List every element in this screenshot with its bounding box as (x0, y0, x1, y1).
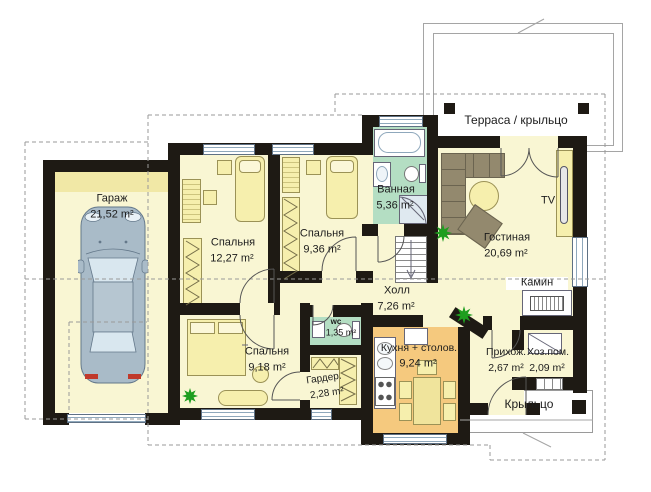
room-label-garage: Гараж (96, 194, 127, 205)
wall (361, 303, 373, 420)
room-label-bathroom: Ванная (377, 185, 415, 196)
dining-chair (399, 403, 412, 421)
porch-column (572, 400, 586, 414)
wardrobe-cabinet-1 (183, 238, 202, 308)
room-area-utility: 2,09 m² (529, 363, 565, 374)
room-area-hall: 7,26 m² (377, 302, 414, 313)
room-label-entry: Прихож. (486, 347, 526, 358)
room-label-bedroom2: Спальня (300, 229, 344, 240)
floor-garage-band (55, 172, 168, 192)
wall (43, 160, 168, 172)
room-area-bedroom3: 9,18 m² (248, 363, 285, 374)
bathtub-inner (378, 132, 421, 153)
terrace-label: Терраса / крыльцо (464, 114, 567, 126)
bed-pillow (330, 160, 354, 173)
wall (168, 408, 365, 420)
toilet-tank (419, 164, 426, 183)
wall (168, 143, 180, 425)
utility-exit-steps (536, 378, 563, 390)
garage-door (67, 414, 146, 423)
wc-sink (312, 321, 325, 338)
wall (43, 413, 69, 425)
tv-label: TV (541, 196, 555, 207)
terrace-column (578, 103, 589, 114)
wall (310, 345, 363, 355)
room-area-garage: 21,52 m² (90, 210, 133, 221)
stove (375, 377, 395, 406)
fireplace-label: Камин (521, 278, 553, 289)
room-label-utility: Хоз.пом. (527, 347, 569, 358)
room-label-bedroom1: Спальня (211, 238, 255, 249)
wardrobe-cabinet-2 (282, 197, 300, 281)
room-area-bathroom: 5,36 m² (376, 201, 413, 212)
window (379, 116, 423, 127)
room-label-hall: Холл (384, 286, 410, 297)
window (383, 434, 447, 444)
desk (182, 179, 201, 223)
wall (268, 271, 373, 283)
room-area-bedroom2: 9,36 m² (303, 245, 340, 256)
door-opening-bedroom1 (240, 303, 274, 315)
staircase (395, 236, 427, 283)
nightstand (217, 160, 232, 175)
window (272, 144, 314, 155)
door-opening-wc (313, 305, 333, 317)
wall (436, 136, 500, 148)
wardrobe-rack-top (311, 357, 339, 370)
room-area-wc: 1,35 m² (326, 329, 357, 338)
wall (300, 303, 310, 420)
window (311, 409, 332, 420)
window (201, 409, 255, 420)
wall (458, 327, 470, 445)
bed-pillow (218, 322, 243, 334)
nightstand (306, 160, 321, 175)
room-label-wc: wc (331, 318, 342, 326)
terrace-column (444, 103, 455, 114)
bench (218, 390, 268, 406)
room-label-living: Гостиная (484, 233, 530, 244)
wall (43, 160, 55, 425)
porch-label: Крыльцо (505, 398, 554, 410)
toilet-bowl (404, 166, 419, 182)
bed-pillow (190, 322, 215, 334)
room-area-bedroom1: 12,27 m² (210, 254, 253, 265)
terrace-outline-inner (433, 33, 614, 146)
dining-chair (399, 381, 412, 399)
fireplace-insert (530, 296, 564, 311)
door-opening-bedroom2 (322, 271, 356, 283)
room-area-kitchen: 9,24 m² (399, 359, 436, 370)
window (203, 144, 255, 155)
closet-hatched (282, 157, 300, 193)
wall (268, 143, 280, 315)
door-opening-entry (492, 316, 520, 330)
room-area-living: 20,69 m² (484, 249, 527, 260)
desk-chair (203, 190, 217, 205)
bed-pillow (239, 160, 261, 173)
tv-set (560, 166, 568, 224)
door-opening-bathroom (378, 224, 404, 236)
window (572, 237, 588, 287)
sink-bowl (376, 166, 388, 182)
door-opening-terrace (500, 136, 558, 148)
room-label-kitchen: Кухня + столов. (381, 343, 457, 354)
dining-chair (443, 381, 456, 399)
kitchen-sink-basin (377, 357, 393, 370)
floor-plan: Гараж 21,52 m² Спальня 12,27 m² Спальня … (0, 0, 651, 492)
car-top-view (78, 202, 148, 388)
room-label-bedroom3: Спальня (245, 347, 289, 358)
room-area-entry: 2,67 m² (488, 363, 524, 374)
dining-table (413, 377, 441, 425)
dining-chair (443, 403, 456, 421)
